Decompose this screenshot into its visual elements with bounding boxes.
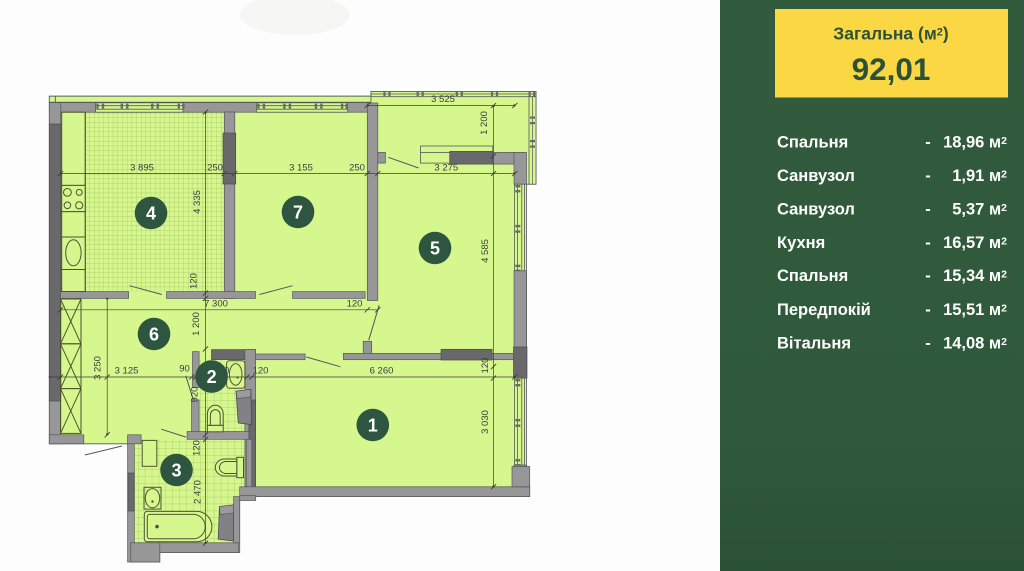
svg-text:5,37 м2: 5,37 м2 xyxy=(952,201,1007,219)
svg-text:7 300: 7 300 xyxy=(204,299,228,310)
svg-text:-: - xyxy=(925,167,931,185)
svg-text:2 470: 2 470 xyxy=(193,480,204,504)
svg-text:Спальня: Спальня xyxy=(777,267,848,285)
svg-text:-: - xyxy=(925,134,931,152)
svg-text:1: 1 xyxy=(368,416,378,436)
svg-text:Кухня: Кухня xyxy=(777,234,825,252)
svg-text:120: 120 xyxy=(189,273,200,289)
svg-text:16,57 м2: 16,57 м2 xyxy=(943,234,1007,252)
svg-text:120: 120 xyxy=(253,366,269,377)
svg-text:Вітальня: Вітальня xyxy=(777,335,851,353)
svg-text:15,34 м2: 15,34 м2 xyxy=(943,267,1007,285)
svg-text:3 275: 3 275 xyxy=(434,163,458,174)
svg-text:5: 5 xyxy=(430,239,440,259)
svg-text:7: 7 xyxy=(293,203,303,223)
svg-text:6 260: 6 260 xyxy=(370,366,394,377)
svg-text:4: 4 xyxy=(146,204,156,224)
svg-text:-: - xyxy=(925,201,931,219)
svg-text:120: 120 xyxy=(480,358,491,374)
svg-text:2: 2 xyxy=(207,367,217,387)
svg-text:1 200: 1 200 xyxy=(191,312,202,336)
svg-text:1 200: 1 200 xyxy=(479,111,490,135)
svg-text:-: - xyxy=(925,267,931,285)
svg-text:3 250: 3 250 xyxy=(93,356,104,380)
svg-text:6: 6 xyxy=(149,325,159,345)
svg-text:1,91 м2: 1,91 м2 xyxy=(952,167,1007,185)
svg-text:-: - xyxy=(925,335,931,353)
svg-text:120: 120 xyxy=(347,299,363,310)
svg-text:4 335: 4 335 xyxy=(192,190,203,214)
svg-text:Загальна (м2): Загальна (м2) xyxy=(833,24,948,44)
svg-text:-: - xyxy=(925,301,931,319)
svg-text:120: 120 xyxy=(192,440,203,456)
svg-text:3 125: 3 125 xyxy=(115,366,139,377)
svg-text:Передпокій: Передпокій xyxy=(777,301,871,319)
svg-text:14,08 м2: 14,08 м2 xyxy=(943,335,1007,353)
svg-text:-: - xyxy=(925,234,931,252)
svg-text:18,96 м2: 18,96 м2 xyxy=(943,134,1007,152)
svg-text:90: 90 xyxy=(179,364,190,375)
svg-text:250: 250 xyxy=(349,163,365,174)
svg-text:Санвузол: Санвузол xyxy=(777,167,855,185)
svg-text:Санвузол: Санвузол xyxy=(777,201,855,219)
svg-text:15,51 м2: 15,51 м2 xyxy=(943,301,1007,319)
svg-text:3: 3 xyxy=(171,461,181,481)
svg-text:920: 920 xyxy=(190,387,201,403)
svg-text:250: 250 xyxy=(207,163,223,174)
svg-text:3 525: 3 525 xyxy=(431,94,455,105)
svg-text:3 030: 3 030 xyxy=(480,410,491,434)
svg-text:4 585: 4 585 xyxy=(480,239,491,263)
svg-text:3 155: 3 155 xyxy=(289,163,313,174)
svg-text:92,01: 92,01 xyxy=(852,51,931,87)
svg-text:3 895: 3 895 xyxy=(130,163,154,174)
svg-text:Спальня: Спальня xyxy=(777,134,848,152)
